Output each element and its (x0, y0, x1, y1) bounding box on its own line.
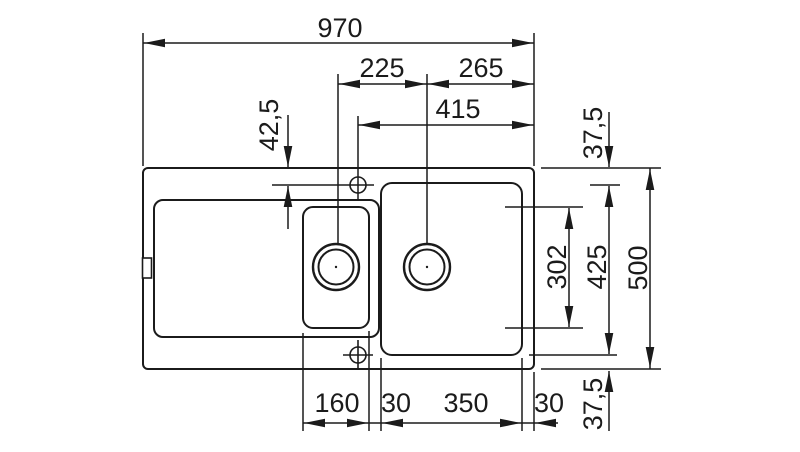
large-bowl-drain (404, 244, 450, 290)
label-large-bowl-length: 425 (582, 244, 612, 289)
label-large-bowl-width: 350 (443, 388, 488, 418)
arrow-225-right (405, 80, 426, 89)
large-drain-center-dot (426, 266, 428, 268)
arrow-970-left (144, 39, 165, 48)
label-drain-center-spacing: 225 (359, 53, 404, 83)
arrow-350-right (500, 419, 521, 428)
drainboard-panel (154, 200, 379, 337)
arrow-500-bottom (646, 347, 655, 368)
arrow-42-5-down (284, 146, 293, 167)
label-tap-hole-to-right-edge: 415 (435, 94, 480, 124)
dimension-labels: 970 225 265 415 160 30 350 30 42,5 37,5 … (254, 13, 653, 430)
arrow-302-bottom (565, 306, 574, 327)
arrow-350-left (382, 419, 403, 428)
arrow-265-right (512, 80, 533, 89)
label-small-bowl-width: 160 (314, 388, 359, 418)
label-small-bowl-inner-length: 302 (542, 244, 572, 289)
arrow-415-right (512, 121, 533, 130)
arrow-225-left (339, 80, 360, 89)
arrow-42-5-up (284, 186, 293, 207)
label-top-edge-to-tap-hole: 42,5 (254, 99, 284, 152)
large-bowl (381, 183, 522, 355)
extension-lines (143, 33, 661, 431)
label-top-edge-to-bowl: 37,5 (578, 107, 608, 160)
left-edge-overflow-notch (143, 258, 152, 278)
dimension-lines (143, 43, 650, 431)
arrow-500-top (646, 169, 655, 190)
arrow-160-right (347, 419, 368, 428)
label-overall-width: 970 (317, 13, 362, 43)
small-drain-center-dot (335, 266, 337, 268)
arrow-425-bottom (605, 333, 614, 354)
label-overall-depth: 500 (623, 245, 653, 290)
sink-dimension-drawing: 970 225 265 415 160 30 350 30 42,5 37,5 … (0, 0, 800, 452)
arrow-970-right (512, 39, 533, 48)
arrow-415-left (359, 121, 380, 130)
label-bowl-to-right-edge: 30 (534, 388, 564, 418)
label-drain-center-to-right-edge: 265 (458, 53, 503, 83)
arrow-425-top (605, 186, 614, 207)
arrow-160-left (304, 419, 325, 428)
label-bowl-gap: 30 (381, 388, 411, 418)
arrow-30-right-outside (535, 419, 556, 428)
arrow-265-left (428, 80, 449, 89)
arrow-302-top (565, 208, 574, 229)
label-bowl-to-bottom-edge: 37,5 (578, 378, 608, 431)
small-bowl-drain (313, 244, 359, 290)
drawing-svg: 970 225 265 415 160 30 350 30 42,5 37,5 … (0, 0, 800, 452)
